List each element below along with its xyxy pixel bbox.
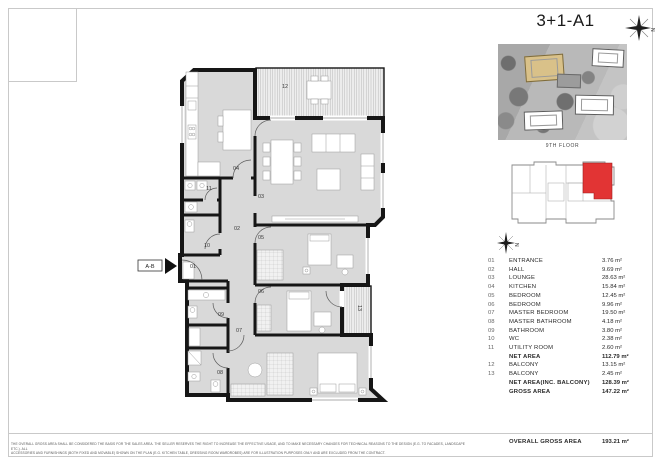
- room-name: BATHROOM: [509, 327, 602, 336]
- room-area: 2.38 m²: [602, 335, 650, 344]
- legend-row: GROSS AREA147.22 m²: [488, 388, 650, 397]
- overall-gross-area-value: 193.21 m²: [602, 438, 650, 447]
- room-name: WC: [509, 335, 602, 344]
- room-area: 2.60 m²: [602, 344, 650, 353]
- room-number: 05: [488, 292, 509, 301]
- room-name: KITCHEN: [509, 283, 602, 292]
- floor-plan-drawing: A-B 01020304050607080910111213: [125, 48, 445, 432]
- room-area: 28.63 m²: [602, 274, 650, 283]
- site-plan-image: [498, 44, 627, 140]
- legend-row: 01ENTRANCE3.76 m²: [488, 257, 650, 266]
- site-building-roof: [530, 58, 558, 78]
- unit-title: 3+1-A1: [498, 11, 633, 31]
- room-name: HALL: [509, 266, 602, 275]
- balcony-12: [256, 68, 384, 117]
- room-name: UTILITY ROOM: [509, 344, 602, 353]
- room-number: 11: [488, 344, 509, 353]
- room-name: ENTRANCE: [509, 257, 602, 266]
- room-area: 13.15 m²: [602, 361, 650, 370]
- section-marker-label: A-B: [145, 264, 155, 270]
- area-legend-table: 01ENTRANCE3.76 m²02HALL9.69 m²03LOUNGE28…: [488, 257, 650, 396]
- room-number: 13: [488, 370, 509, 379]
- room-name: BALCONY: [509, 370, 602, 379]
- key-plan: [506, 157, 620, 231]
- room-label-08: 08: [217, 370, 223, 376]
- room-number: 02: [488, 266, 509, 275]
- room-name: BALCONY: [509, 361, 602, 370]
- legend-row: 05BEDROOM12.45 m²: [488, 292, 650, 301]
- room-label-06: 06: [258, 289, 264, 295]
- room-number: [488, 388, 509, 397]
- legend-row: 04KITCHEN15.84 m²: [488, 283, 650, 292]
- room-number: [488, 438, 509, 447]
- room-area: 112.79 m²: [602, 353, 650, 362]
- disclaimer-line-2: ACCESSORIES AND FURNISHINGS (BOTH FIXED …: [11, 451, 466, 456]
- floor-plan-sheet: A-B 01020304050607080910111213 3+1-A1 N …: [0, 0, 660, 467]
- disclaimer-line-1: THE OVERALL GROSS AREA SHALL BE CONSIDER…: [11, 442, 466, 451]
- legend-row: 12BALCONY13.15 m²: [488, 361, 650, 370]
- key-plan-compass-icon: N: [494, 231, 520, 257]
- legend-row: 03LOUNGE28.63 m²: [488, 274, 650, 283]
- section-marker: A-B: [138, 258, 177, 274]
- room-number: 03: [488, 274, 509, 283]
- room-number: 12: [488, 361, 509, 370]
- room-label-03: 03: [258, 194, 264, 200]
- room-number: 06: [488, 301, 509, 310]
- room-label-12: 12: [282, 84, 288, 90]
- legend-row: NET AREA(INC. BALCONY)128.39 m²: [488, 379, 650, 388]
- legend-row: 06BEDROOM9.96 m²: [488, 301, 650, 310]
- room-name: GROSS AREA: [509, 388, 602, 397]
- room-label-10: 10: [204, 243, 210, 249]
- logo-placeholder-box: [8, 8, 77, 82]
- legend-row: 11UTILITY ROOM2.60 m²: [488, 344, 650, 353]
- key-compass-north-label: N: [513, 243, 519, 247]
- room-name: MASTER BATHROOM: [509, 318, 602, 327]
- room-number: 07: [488, 309, 509, 318]
- room-number: [488, 379, 509, 388]
- room-label-04: 04: [233, 166, 239, 172]
- legend-row: 02HALL9.69 m²: [488, 266, 650, 275]
- room-number: [488, 353, 509, 362]
- room-label-11: 11: [206, 186, 212, 192]
- legend-row: 10WC2.38 m²: [488, 335, 650, 344]
- legend-row: 13BALCONY2.45 m²: [488, 370, 650, 379]
- overall-gross-area-label: OVERALL GROSS AREA: [509, 438, 602, 447]
- site-building: [557, 74, 581, 89]
- room-label-05: 05: [258, 235, 264, 241]
- overall-gross-area-row: OVERALL GROSS AREA 193.21 m²: [488, 438, 650, 447]
- disclaimer-text: THE OVERALL GROSS AREA SHALL BE CONSIDER…: [11, 442, 466, 456]
- room-number: 01: [488, 257, 509, 266]
- room-label-07: 07: [236, 328, 242, 334]
- room-label-13: 13: [356, 305, 362, 311]
- room-label-02: 02: [234, 226, 240, 232]
- room-area: 3.80 m²: [602, 327, 650, 336]
- room-area: 4.18 m²: [602, 318, 650, 327]
- room-number: 04: [488, 283, 509, 292]
- room-area: 9.96 m²: [602, 301, 650, 310]
- site-building: [592, 48, 625, 68]
- compass-north-label: N: [649, 28, 655, 32]
- room-name: LOUNGE: [509, 274, 602, 283]
- room-name: MASTER BEDROOM: [509, 309, 602, 318]
- room-name: NET AREA: [509, 353, 602, 362]
- room-number: 09: [488, 327, 509, 336]
- room-area: 128.39 m²: [602, 379, 650, 388]
- legend-row: NET AREA112.79 m²: [488, 353, 650, 362]
- site-building: [575, 95, 614, 116]
- room-area: 15.84 m²: [602, 283, 650, 292]
- floor-label: 9TH FLOOR: [498, 143, 627, 149]
- legend-row: 08MASTER BATHROOM4.18 m²: [488, 318, 650, 327]
- room-area: 147.22 m²: [602, 388, 650, 397]
- room-name: BEDROOM: [509, 301, 602, 310]
- room-name: BEDROOM: [509, 292, 602, 301]
- room-area: 3.76 m²: [602, 257, 650, 266]
- room-label-09: 09: [218, 312, 224, 318]
- compass-icon: N: [623, 13, 657, 43]
- room-number: 10: [488, 335, 509, 344]
- room-area: 12.45 m²: [602, 292, 650, 301]
- titleblock-divider: [8, 433, 652, 434]
- room-area: 19.50 m²: [602, 309, 650, 318]
- legend-row: 07MASTER BEDROOM19.50 m²: [488, 309, 650, 318]
- room-area: 9.69 m²: [602, 266, 650, 275]
- room-label-01: 01: [190, 264, 196, 270]
- room-area: 2.45 m²: [602, 370, 650, 379]
- site-building: [524, 110, 564, 130]
- room-number: 08: [488, 318, 509, 327]
- legend-row: 09BATHROOM3.80 m²: [488, 327, 650, 336]
- room-name: NET AREA(INC. BALCONY): [509, 379, 602, 388]
